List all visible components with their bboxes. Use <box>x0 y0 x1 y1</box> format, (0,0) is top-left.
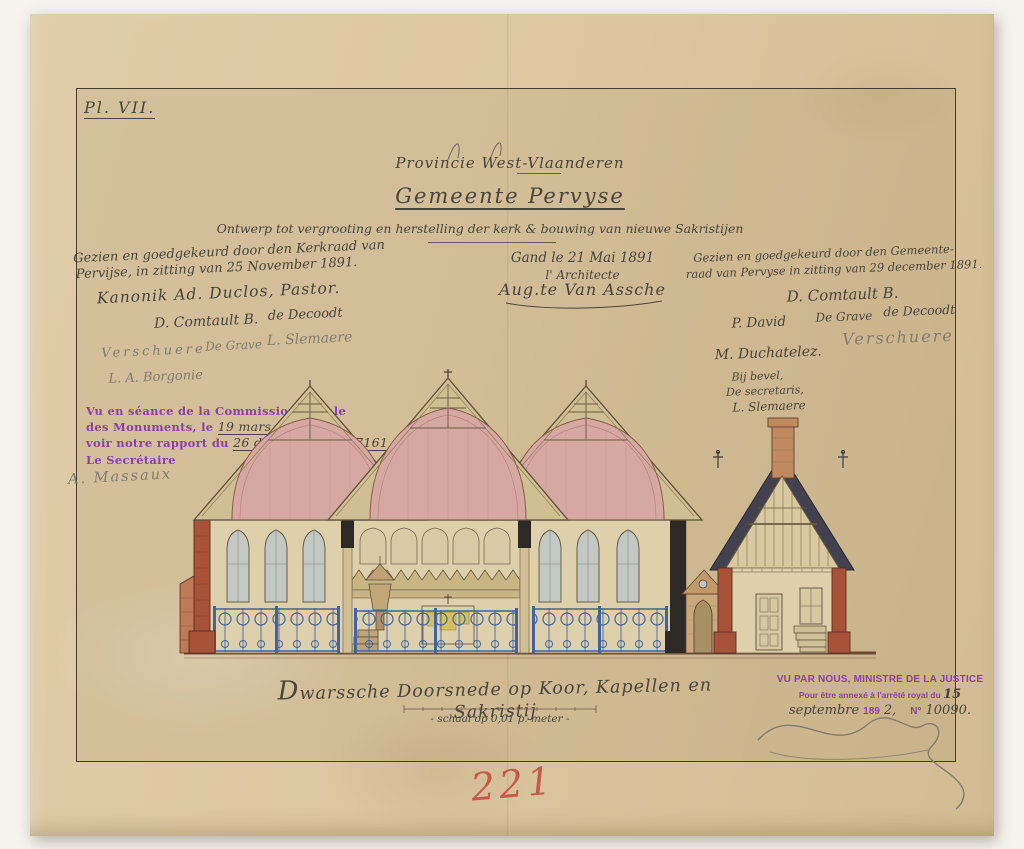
handwritten-fill: 15 <box>943 687 961 702</box>
ground-line <box>184 653 876 658</box>
pastor-name: Kanonik Ad. Duclos, Pastor. <box>97 281 341 307</box>
inventory-number: 221 <box>426 755 599 814</box>
center-gable-roof <box>328 369 568 520</box>
signature: P. David <box>731 316 786 331</box>
signature: De Grave <box>205 338 262 352</box>
province-title: Provincie West-Vlaanderen <box>310 154 710 172</box>
chapel-windows-left <box>227 530 325 602</box>
date-line: Gand le 21 Mai 1891 <box>475 252 690 266</box>
sacristy <box>710 418 854 653</box>
signature: D. Comtault B. <box>786 286 898 305</box>
signature: de Decoodt <box>268 307 343 323</box>
chimney <box>772 426 794 478</box>
scale-label: - schaal op 0,01 p. meter - <box>410 713 590 725</box>
project-subtitle: Ontwerp tot vergrooting en herstelling d… <box>200 221 760 236</box>
signature: D. Comtault B. <box>154 312 259 331</box>
ridge-cross-right <box>838 451 848 469</box>
architect-signature: Aug.te Van Assche <box>475 282 690 298</box>
signature: Verschuere <box>101 343 206 361</box>
stamp-title: VU PAR NOUS, MINISTRE DE LA JUSTICE <box>776 674 984 685</box>
choir-arcade <box>360 528 510 564</box>
iron-railings <box>213 606 668 653</box>
plate-label: Pl. VII. <box>84 98 155 119</box>
signature: De Grave <box>815 310 872 324</box>
architect-role: l' Architecte <box>475 269 690 281</box>
church-cross-section-drawing <box>180 368 880 680</box>
stamp-line: Pour être annexé à l'arrêté royal du 15 <box>776 687 984 702</box>
stamp-label: Pour être annexé à l'arrêté royal du <box>799 690 941 700</box>
underline-decoration <box>517 173 561 174</box>
sacristy-door <box>756 594 782 650</box>
architect-block: Gand le 21 Mai 1891 l' Architecte Aug.te… <box>475 252 690 314</box>
chapel-windows-right <box>539 530 639 602</box>
signature: Verschuere <box>842 328 954 348</box>
signature-flourish <box>498 299 668 311</box>
signature: de Decoodt <box>883 304 955 319</box>
gemeente-title: Gemeente Pervyse <box>340 184 680 208</box>
signature: L. Slemaere <box>267 330 353 348</box>
ridge-cross-left <box>713 451 723 469</box>
minister-signature-flourish <box>730 706 980 816</box>
signature: M. Duchatelez. <box>714 344 822 362</box>
paper-sheet: Pl. VII. Provincie West-Vlaanderen Gemee… <box>30 14 994 836</box>
